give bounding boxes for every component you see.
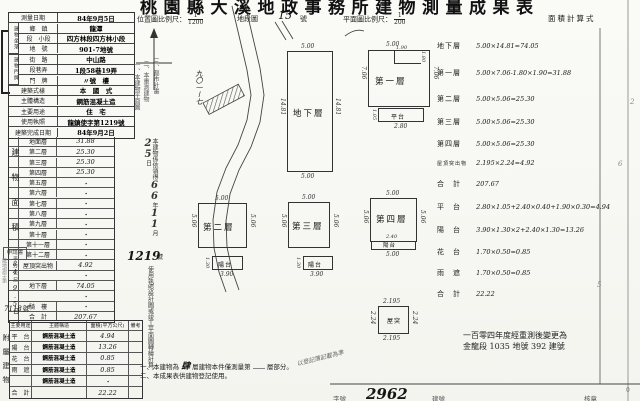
info-label: 主體構造 xyxy=(9,96,58,105)
annex-structure: 鋼筋混凝土造 xyxy=(32,342,87,352)
calc-line: 第一層 5.00×7.06-1.80×1.90=31.88 xyxy=(437,60,571,79)
floor-area-value: 31.88 xyxy=(57,137,114,145)
area-calc-column: 地下層 5.00×14.81=74.05 第一層 5.00×7.06-1.80×… xyxy=(437,0,607,330)
building-info-table: 測量日期 84年9月5日 鄉 鎮 龍潭 段 小段 四方林段四方林小段 地 號 9… xyxy=(8,12,135,139)
floor-area-value: 25.30 xyxy=(57,148,114,156)
footer-field-zihao: 字號 xyxy=(333,393,346,401)
annex-row: 陽 台 鋼筋混凝土造 13.26 xyxy=(10,342,142,353)
calc-line-label: 雨 遮 xyxy=(437,268,471,278)
floor-area-value: ・ xyxy=(57,291,114,301)
floor-area-value: ・ xyxy=(57,178,114,188)
annex-note xyxy=(129,342,142,352)
plan-second-floor: 第二層 xyxy=(198,203,247,248)
platform-label: 平台 xyxy=(391,112,405,121)
annex-structure: 鋼筋混凝土造 xyxy=(32,331,87,341)
f2-dim-top: 5.00 xyxy=(215,196,228,202)
calc-line: 合 計 22.22 xyxy=(437,281,495,300)
footer-number-handwritten: 2962 xyxy=(366,385,408,401)
platform-dim-h: 1.05 xyxy=(371,109,377,120)
annex-area: 0.85 xyxy=(87,365,129,375)
location-scale: 位置圖比例尺：11200 xyxy=(137,13,205,26)
annex-structure xyxy=(32,387,87,398)
group-label-address: 建物門牌 xyxy=(8,54,19,85)
floor-row: 第四層 25.30 xyxy=(9,168,114,178)
floor-row: 第五層 ・ xyxy=(9,178,114,188)
calc-line-formula: 5.00×5.06=25.30 xyxy=(476,118,534,126)
calc-line-formula: 3.90×1.30×2+2.40×1.30=13.26 xyxy=(476,226,584,234)
info-row: 鄉 鎮 龍潭 xyxy=(9,23,134,33)
f3-dim-right: 5.06 xyxy=(332,214,338,227)
annex-note xyxy=(129,387,142,398)
license-note-upper: 本建物係依領得66年11月25日 xyxy=(144,138,157,253)
info-value: 龍鎮使字第1219號 xyxy=(58,117,134,127)
annex-header-note: 備考 xyxy=(129,321,142,330)
subject-parcel-hatch xyxy=(203,84,244,114)
floor-area-value: ・ xyxy=(57,229,114,239)
info-row: 門 牌 〃號 樓 xyxy=(9,75,134,85)
info-value: 901-7地號 xyxy=(58,44,134,54)
info-row: 測量日期 84年9月5日 xyxy=(9,13,134,23)
plan-scale-label: 平面圖比例尺： xyxy=(343,16,392,24)
calc-line: 屋頂突出物 2.195×2.24=4.92 xyxy=(437,150,535,169)
annex-structure: 鋼筋混凝土造 xyxy=(32,365,87,375)
calc-line-formula: 1.70×0.50=0.85 xyxy=(476,269,530,277)
annex-header-row: 主要用途 主體構造 面積(平方公尺) 備考 xyxy=(10,321,142,331)
footer-note1-blank xyxy=(253,368,265,369)
plan-fourth-floor-balcony: 陽台 xyxy=(371,241,416,250)
annex-row: 合 計 22.22 xyxy=(10,387,142,398)
info-label: 測量日期 xyxy=(9,13,58,22)
footer-field-seal: 核章 xyxy=(584,393,597,401)
floor-area-value: 25.30 xyxy=(57,158,114,166)
plan-second-floor-balcony: 陽台 xyxy=(212,256,243,270)
calc-line-label: 地下層 xyxy=(437,41,471,51)
calc-line-label: 花 台 xyxy=(437,247,471,257)
f3-balcony-label: 陽台 xyxy=(308,260,322,269)
f2-dim-right: 5.06 xyxy=(249,214,255,227)
info-row: 地 號 901-7地號 xyxy=(9,44,134,54)
calc-line-label: 第三層 xyxy=(437,117,471,127)
calc-line-formula: 5.00×5.06=25.30 xyxy=(476,95,534,103)
f3-dim-top: 5.00 xyxy=(302,195,315,201)
calc-line-label: 第四層 xyxy=(437,139,471,149)
calc-line-formula: 5.00×7.06-1.80×1.90=31.88 xyxy=(476,69,571,77)
floor-area-value: ・ xyxy=(57,301,114,311)
info-row: 主要用途 住 宅 xyxy=(9,107,134,117)
basement-dim-left: 14.81 xyxy=(279,98,285,115)
annex-header-structure: 主體構造 xyxy=(32,321,87,330)
info-value: 中山路 xyxy=(58,55,134,65)
form-note-2: 二、本重測建物 xyxy=(142,60,149,130)
annex-row: 雨 遮 鋼筋混凝土造 0.85 xyxy=(10,365,142,376)
form-note-1: 一、本建物平面圖 xyxy=(133,62,140,137)
info-label: 建築完成日期 xyxy=(9,128,58,137)
annex-use: 合 計 xyxy=(10,387,32,398)
calc-line: 第三層 5.00×5.06=25.30 xyxy=(437,109,535,128)
plan-fourth-floor-label: 第四層 xyxy=(376,213,408,225)
floor-area-value: ・ xyxy=(57,250,114,260)
info-value: 〃號 樓 xyxy=(58,75,134,85)
annex-row: 平 台 鋼筋混凝土造 4.94 xyxy=(10,331,142,342)
plan-scale: 平面圖比例尺：1200 xyxy=(343,13,407,26)
basement-dim-right: 14.81 xyxy=(334,98,340,115)
calc-line-formula: 2.195×2.24=4.92 xyxy=(476,159,534,167)
calc-line: 平 台 2.80×1.05+2.40×0.40+1.90×0.30=4.94 xyxy=(437,194,610,213)
form-note-3: 三、都市計畫 xyxy=(152,58,159,118)
annex-area: 13.26 xyxy=(87,342,129,352)
group-label-location: 建物坐落 xyxy=(8,22,19,53)
annex-structure: 鋼筋混凝土造 xyxy=(32,376,87,386)
footer-note1-post: 層部分。 xyxy=(267,363,293,371)
roof-dim-right: 2.24 xyxy=(411,311,417,324)
info-label: 使用執照 xyxy=(9,117,58,126)
f1-notch-dim-w: 1.90 xyxy=(396,45,407,51)
annex-area: 22.22 xyxy=(87,387,129,398)
plan-roof-projection: 屋突 xyxy=(378,306,409,334)
plan-scale-fraction: 1200 xyxy=(394,13,405,26)
license-day: 25 xyxy=(143,138,154,160)
f1-dim-left: 7.06 xyxy=(360,66,366,79)
calc-line-formula: 22.22 xyxy=(476,290,495,298)
f4-balcony-label: 陽台 xyxy=(383,241,396,249)
info-label: 建築式樣 xyxy=(9,86,58,95)
annex-area: ・ xyxy=(87,376,129,386)
calc-line: 陽 台 3.90×1.30×2+2.40×1.30=13.26 xyxy=(437,217,584,236)
f3-dim-left: 5.06 xyxy=(280,214,286,227)
f1-notch-dim-h: 1.80 xyxy=(420,51,426,62)
calc-line-label: 陽 台 xyxy=(437,225,471,235)
annex-header-area: 面積(平方公尺) xyxy=(87,321,129,330)
f4-dim-left: 5.06 xyxy=(362,210,368,223)
annex-header-use: 主要用途 xyxy=(10,321,32,330)
floor-row: ・ xyxy=(9,271,114,281)
calc-line-label: 屋頂突出物 xyxy=(437,160,471,167)
first-floor-notch xyxy=(394,50,421,64)
map-sheet-unit: 號 xyxy=(300,14,307,24)
floor-area-value: 25.30 xyxy=(57,168,114,176)
calc-line-formula: 5.00×14.81=74.05 xyxy=(476,42,539,50)
floor-row: 第六層 ・ xyxy=(9,188,114,198)
annex-use: 陽 台 xyxy=(10,342,32,352)
roof-dim-top: 2.195 xyxy=(383,299,400,305)
annex-use: 花 台 xyxy=(10,353,32,363)
calc-line: 合 計 207.67 xyxy=(437,171,499,190)
margin-mark-1: 2 xyxy=(630,98,634,106)
annex-area: 4.94 xyxy=(87,331,129,341)
info-row: 段 小段 四方林段四方林小段 xyxy=(9,34,134,44)
info-value: 本 國 式 xyxy=(58,86,134,96)
plan-third-floor: 第三層 xyxy=(288,202,330,248)
margin-mark-3: 5 xyxy=(597,281,601,289)
floor-row: 第三層 25.30 xyxy=(9,157,114,167)
plan-basement-label: 地下層 xyxy=(293,107,325,119)
annex-structure: 鋼筋混凝土造 xyxy=(32,353,87,363)
calc-line-formula: 2.80×1.05+2.40×0.40+1.90×0.30=4.94 xyxy=(476,203,610,211)
map-sheet-number: 15 xyxy=(278,9,292,22)
location-scale-fraction: 11200 xyxy=(188,13,203,26)
info-value: 龍潭 xyxy=(58,23,134,33)
info-value: 鋼筋混凝土造 xyxy=(58,96,134,106)
location-scale-label: 位置圖比例尺： xyxy=(137,16,186,24)
footer-note-2: 二、本成果表供建物登記使用。 xyxy=(140,370,231,380)
annex-side-label: 附屬建物 xyxy=(1,334,11,390)
calc-line: 雨 遮 1.70×0.50=0.85 xyxy=(437,260,530,279)
receipt-number: 7118號 xyxy=(4,304,29,314)
f4-dim-top: 5.00 xyxy=(386,191,399,197)
info-row: 街 路 中山路 xyxy=(9,55,134,65)
f3-balcony-dim-h: 1.30 xyxy=(295,257,301,268)
scan-page: 桃園縣大溪地政事務所建物測量成果表 位置圖比例尺：11200 地段圖 15 號 … xyxy=(0,0,640,401)
calc-line: 花 台 1.70×0.50=0.85 xyxy=(437,239,530,258)
calc-line-label: 平 台 xyxy=(437,202,471,212)
license-number-handwritten: 1219 xyxy=(127,249,160,263)
road-left-edge xyxy=(213,6,251,292)
map-sheet-label: 地段圖 xyxy=(237,14,258,24)
license-year: 66 xyxy=(149,180,160,202)
roof-dim-bottom: 2.195 xyxy=(383,336,400,342)
roof-dim-left: 2.24 xyxy=(369,311,375,324)
plan-first-floor-label: 第一層 xyxy=(375,75,407,87)
floor-area-value: ・ xyxy=(57,188,114,198)
plan-basement: 地下層 xyxy=(287,51,333,172)
info-row: 段巷弄 1段58巷19弄 xyxy=(9,65,134,75)
basement-dim-bottom: 5.00 xyxy=(301,174,314,180)
floor-row: 第八層 ・ xyxy=(9,209,114,219)
info-value: 四方林段四方林小段 xyxy=(58,34,134,44)
license-day-unit: 日 xyxy=(145,160,152,166)
annex-use: 雨 遮 xyxy=(10,365,32,375)
calc-line-label: 第一層 xyxy=(437,68,471,78)
info-value: 住 宅 xyxy=(58,107,134,117)
f3-balcony-dim-w: 3.90 xyxy=(310,272,323,278)
floor-area-value: ・ xyxy=(57,209,114,219)
info-value: 1段58巷19弄 xyxy=(58,65,134,75)
plan-first-floor-platform: 平台 xyxy=(378,108,424,122)
floor-area-value: ・ xyxy=(57,270,114,280)
annex-rows: 平 台 鋼筋混凝土造 4.94 陽 台 鋼筋混凝土造 13.26 花 台 鋼筋混… xyxy=(10,331,142,398)
calc-line-formula: 5.00×5.06=25.30 xyxy=(476,140,534,148)
f4-dim-right: 5.06 xyxy=(419,210,425,223)
floor-row: 第七層 ・ xyxy=(9,199,114,209)
f2-balcony-label: 陽台 xyxy=(218,260,232,269)
basement-dim-top: 5.00 xyxy=(301,44,314,50)
annex-area: 0.85 xyxy=(87,353,129,363)
calc-line-label: 合 計 xyxy=(437,289,471,299)
floor-area-table: 地面層 31.88 第二層 25.30 第三層 25.30 第四層 25.30 … xyxy=(8,137,115,323)
f4-balcony-dim-w: 2.40 xyxy=(386,234,397,240)
annex-use: 平 台 xyxy=(10,331,32,341)
annex-row: 花 台 鋼筋混凝土造 0.85 xyxy=(10,353,142,364)
f4-dim-bottom: 5.00 xyxy=(386,252,399,258)
info-row: 主體構造 鋼筋混凝土造 xyxy=(9,96,134,106)
platform-dim-w: 2.80 xyxy=(394,124,407,130)
roof-label: 屋突 xyxy=(387,316,401,325)
floor-area-value: ・ xyxy=(57,198,114,208)
calc-line: 地下層 5.00×14.81=74.05 xyxy=(437,33,539,52)
license-month-unit: 月 xyxy=(151,230,158,236)
floor-row: 第二層 25.30 xyxy=(9,147,114,157)
floor-row: 地面層 31.88 xyxy=(9,137,114,147)
calc-line: 第四層 5.00×5.06=25.30 xyxy=(437,131,535,150)
footer-tiny-mark: 0 xyxy=(626,387,630,394)
f2-balcony-dim-h: 1.30 xyxy=(204,257,210,268)
annex-row: 鋼筋混凝土造 ・ xyxy=(10,376,142,387)
license-number-unit: 號 xyxy=(157,252,163,261)
receipt-prefix: 龍地測字第 xyxy=(0,258,7,283)
floor-area-value: ・ xyxy=(57,239,114,249)
resurvey-note-line2: 金龍段 1035 地號 392 建號 xyxy=(463,341,565,352)
info-value: 84年9月5日 xyxy=(58,13,134,23)
annex-use xyxy=(10,376,32,386)
plan-second-floor-label: 第二層 xyxy=(203,221,235,233)
floor-row: 屋頂突出物 4.92 xyxy=(9,260,114,270)
floor-area-value: 4.92 xyxy=(57,261,114,269)
resurvey-note-line1: 一百零四年度經重測後變更為 xyxy=(463,330,567,341)
calc-line: 第二層 5.00×5.06=25.30 xyxy=(437,86,535,105)
footer-field-jianhao: 建號 xyxy=(432,393,445,401)
license-month: 11 xyxy=(149,208,160,230)
margin-mark-2: 6 xyxy=(618,160,622,168)
floor-area-value: ・ xyxy=(57,219,114,229)
f2-balcony-dim-w: 3.90 xyxy=(220,272,233,278)
annex-table: 主要用途 主體構造 面積(平方公尺) 備考 平 台 鋼筋混凝土造 4.94 陽 … xyxy=(9,320,143,399)
plan-third-floor-balcony: 陽台 xyxy=(303,256,333,270)
plan-third-floor-label: 第三層 xyxy=(292,220,324,232)
calc-line-label: 第二層 xyxy=(437,94,471,104)
floor-area-value: 74.05 xyxy=(57,282,114,290)
calc-line-formula: 1.70×0.50=0.85 xyxy=(476,248,530,256)
info-row: 建築式樣 本 國 式 xyxy=(9,86,134,96)
calc-line-label: 合 計 xyxy=(437,179,471,189)
calc-line-formula: 207.67 xyxy=(476,180,499,188)
floor-row: 地下層 74.05 xyxy=(9,281,114,291)
f2-dim-left: 5.06 xyxy=(190,214,196,227)
info-label: 主要用途 xyxy=(9,107,58,116)
floor-row: 第九層 ・ xyxy=(9,219,114,229)
info-row: 使用執照 龍鎮使字第1219號 xyxy=(9,117,134,127)
floor-side-label: 建物面積 xyxy=(10,148,21,248)
floor-row: ・ xyxy=(9,291,114,301)
floor-row: 第十層 ・ xyxy=(9,229,114,239)
annex-note xyxy=(129,331,142,341)
parcel-number-label: 九〇一ー七 xyxy=(194,70,204,110)
